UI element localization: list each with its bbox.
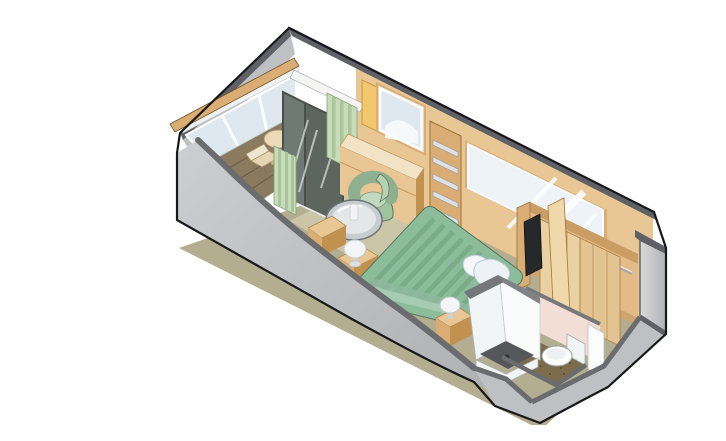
stateroom-floorplan: Isometric cutaway illustration of a crui… xyxy=(40,16,726,425)
tv xyxy=(524,214,542,276)
floorplan-svg: Isometric cutaway illustration of a crui… xyxy=(40,16,726,425)
curtain-stripes xyxy=(278,149,294,212)
table-vase xyxy=(350,204,358,220)
curtain-left xyxy=(274,146,296,215)
